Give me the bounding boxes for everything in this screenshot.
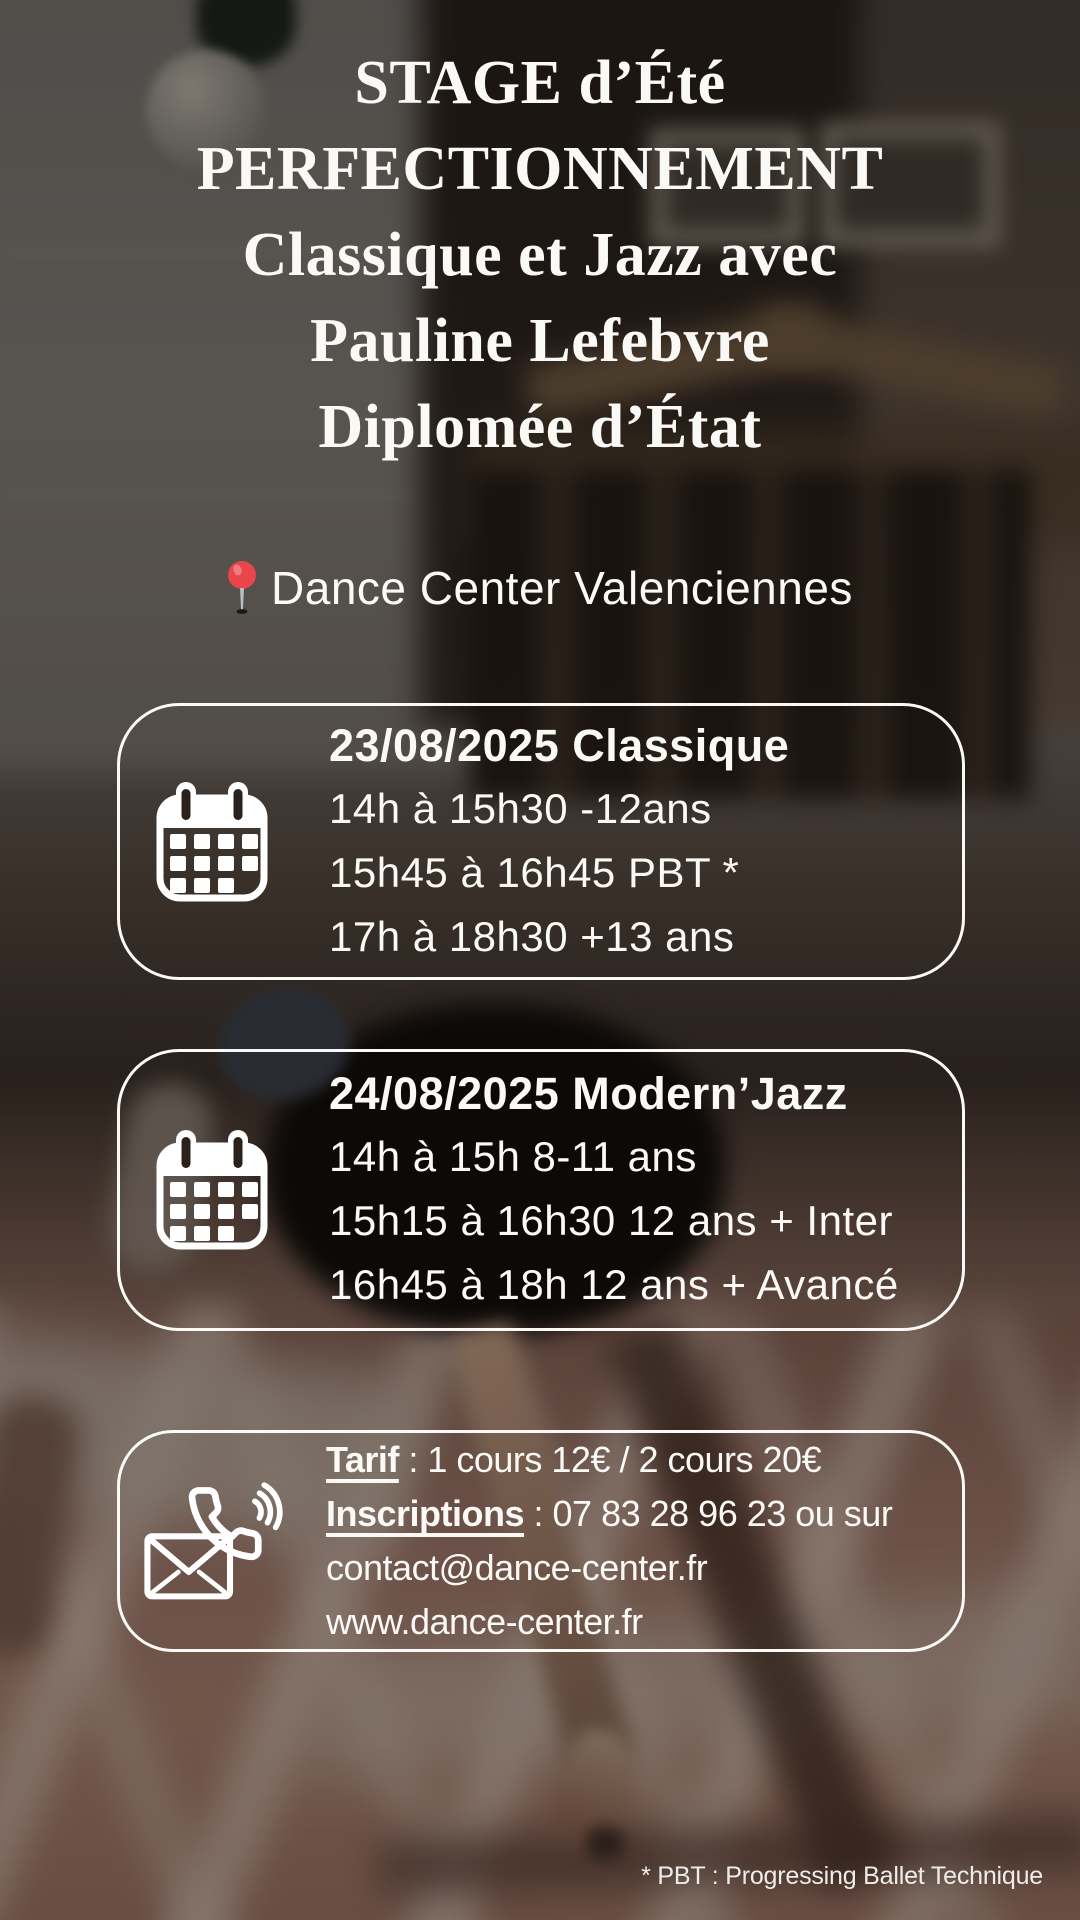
inscriptions-label: Inscriptions <box>326 1493 524 1534</box>
session-line: 17h à 18h30 +13 ans <box>329 905 789 969</box>
page-title: STAGE d’Été PERFECTIONNEMENT Classique e… <box>0 40 1080 470</box>
session-line: 16h45 à 18h 12 ans + Avancé <box>329 1253 899 1317</box>
location-row: Dance Center Valenciennes <box>0 556 1080 620</box>
calendar-icon <box>156 782 268 902</box>
pbt-footnote: * PBT : Progressing Ballet Technique <box>641 1862 1043 1891</box>
inscriptions-line: Inscriptions : 07 83 28 96 23 ou sur <box>326 1487 892 1541</box>
session-line: 15h15 à 16h30 12 ans + Inter <box>329 1189 899 1253</box>
tarif-value: : 1 cours 12€ / 2 cours 20€ <box>399 1439 821 1480</box>
title-line: STAGE d’Été <box>0 40 1080 126</box>
session-line: 15h45 à 16h45 PBT * <box>329 841 789 905</box>
phone-mail-icon <box>142 1480 288 1602</box>
session-card-modern-jazz: 24/08/2025 Modern’Jazz 14h à 15h 8-11 an… <box>117 1049 965 1331</box>
title-line: Classique et Jazz avec <box>0 212 1080 298</box>
contact-website: www.dance-center.fr <box>326 1595 892 1649</box>
tarif-label: Tarif <box>326 1439 399 1480</box>
session-card-classique: 23/08/2025 Classique 14h à 15h30 -12ans … <box>117 703 965 980</box>
session-title: 24/08/2025 Modern’Jazz <box>329 1063 899 1125</box>
title-line: Diplomée d’État <box>0 384 1080 470</box>
flyer-content: STAGE d’Été PERFECTIONNEMENT Classique e… <box>0 0 1080 1920</box>
contact-email: contact@dance-center.fr <box>326 1541 892 1595</box>
round-pushpin-icon <box>227 559 257 617</box>
session-line: 14h à 15h 8-11 ans <box>329 1125 899 1189</box>
session-title: 23/08/2025 Classique <box>329 715 789 777</box>
calendar-icon <box>156 1130 268 1250</box>
flyer-poster: STAGE d’Été PERFECTIONNEMENT Classique e… <box>0 0 1080 1920</box>
inscriptions-value: : 07 83 28 96 23 ou sur <box>524 1493 892 1534</box>
title-line: Pauline Lefebvre <box>0 298 1080 384</box>
contact-details: Tarif : 1 cours 12€ / 2 cours 20€ Inscri… <box>326 1433 892 1649</box>
tarif-line: Tarif : 1 cours 12€ / 2 cours 20€ <box>326 1433 892 1487</box>
session-line: 14h à 15h30 -12ans <box>329 777 789 841</box>
contact-card: Tarif : 1 cours 12€ / 2 cours 20€ Inscri… <box>117 1430 965 1652</box>
session-details: 24/08/2025 Modern’Jazz 14h à 15h 8-11 an… <box>329 1063 899 1317</box>
session-details: 23/08/2025 Classique 14h à 15h30 -12ans … <box>329 715 789 969</box>
location-label: Dance Center Valenciennes <box>271 561 853 615</box>
title-line: PERFECTIONNEMENT <box>0 126 1080 212</box>
